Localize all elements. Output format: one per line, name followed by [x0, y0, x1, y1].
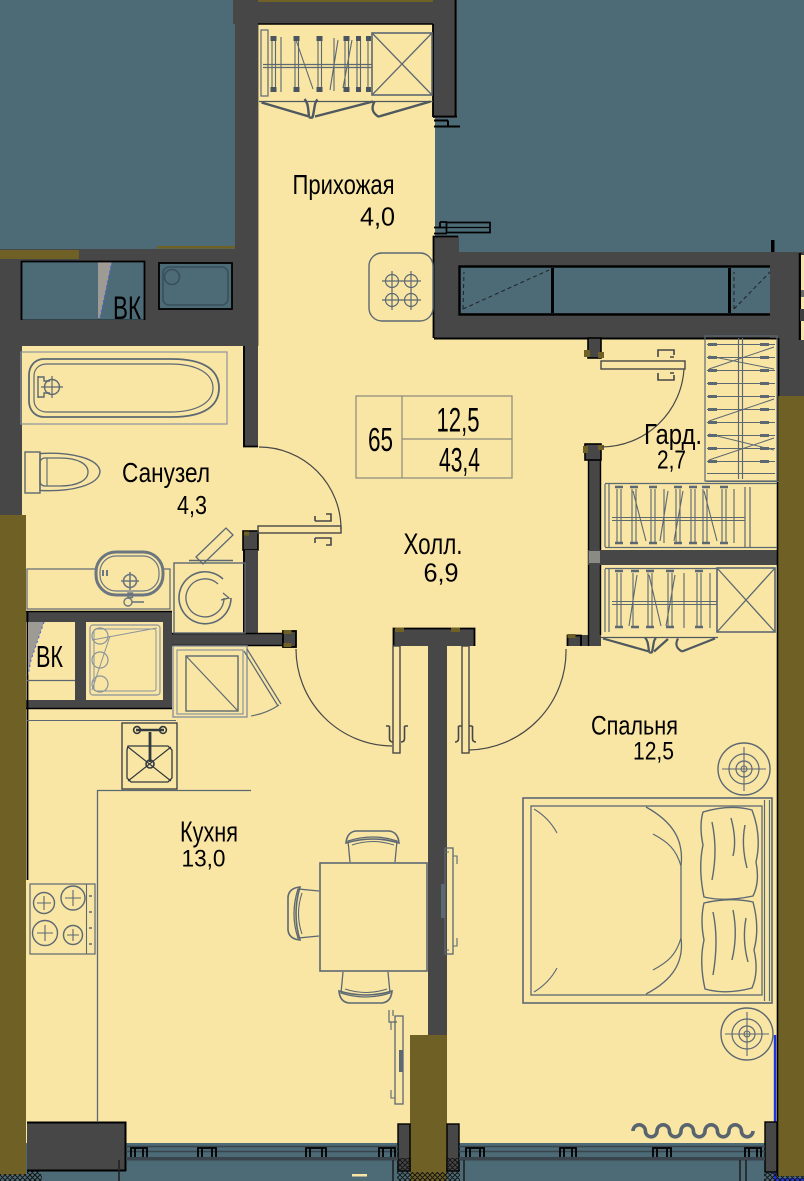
svg-text:4,3: 4,3 — [177, 490, 207, 520]
svg-text:65: 65 — [368, 421, 393, 458]
svg-text:13,0: 13,0 — [182, 846, 226, 873]
svg-text:Кухня: Кухня — [180, 817, 238, 849]
svg-text:Санузел: Санузел — [122, 457, 210, 488]
svg-text:Спальня: Спальня — [591, 711, 678, 741]
svg-text:Прихожая: Прихожая — [293, 169, 395, 200]
svg-text:2,7: 2,7 — [657, 445, 686, 475]
svg-text:6,9: 6,9 — [424, 558, 459, 588]
svg-text:Холл.: Холл. — [404, 528, 463, 561]
svg-text:12,5: 12,5 — [437, 402, 480, 440]
svg-text:ВК: ВК — [36, 639, 63, 674]
svg-text:4,0: 4,0 — [360, 202, 395, 232]
svg-text:12,5: 12,5 — [633, 738, 674, 766]
svg-text:43,4: 43,4 — [439, 442, 480, 480]
